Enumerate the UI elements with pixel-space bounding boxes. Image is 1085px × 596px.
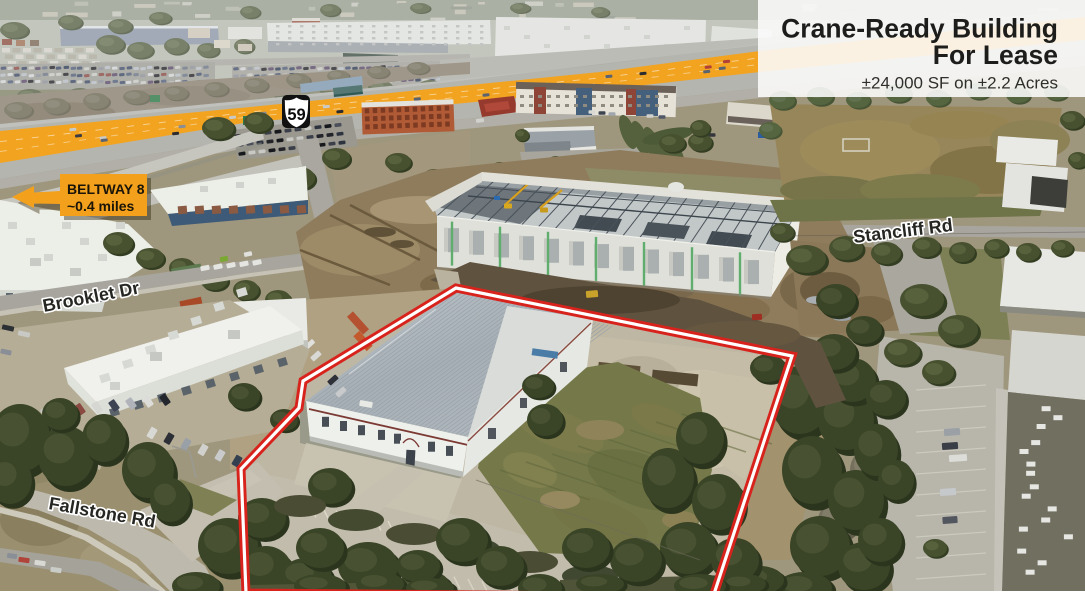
svg-text:~0.4 miles: ~0.4 miles <box>67 198 135 214</box>
svg-text:For Lease: For Lease <box>933 40 1058 70</box>
svg-text:±24,000 SF on ±2.2 Acres: ±24,000 SF on ±2.2 Acres <box>862 74 1058 93</box>
svg-text:BELTWAY 8: BELTWAY 8 <box>67 181 145 197</box>
svg-text:59: 59 <box>287 106 305 124</box>
svg-text:Crane-Ready Building: Crane-Ready Building <box>781 14 1058 44</box>
